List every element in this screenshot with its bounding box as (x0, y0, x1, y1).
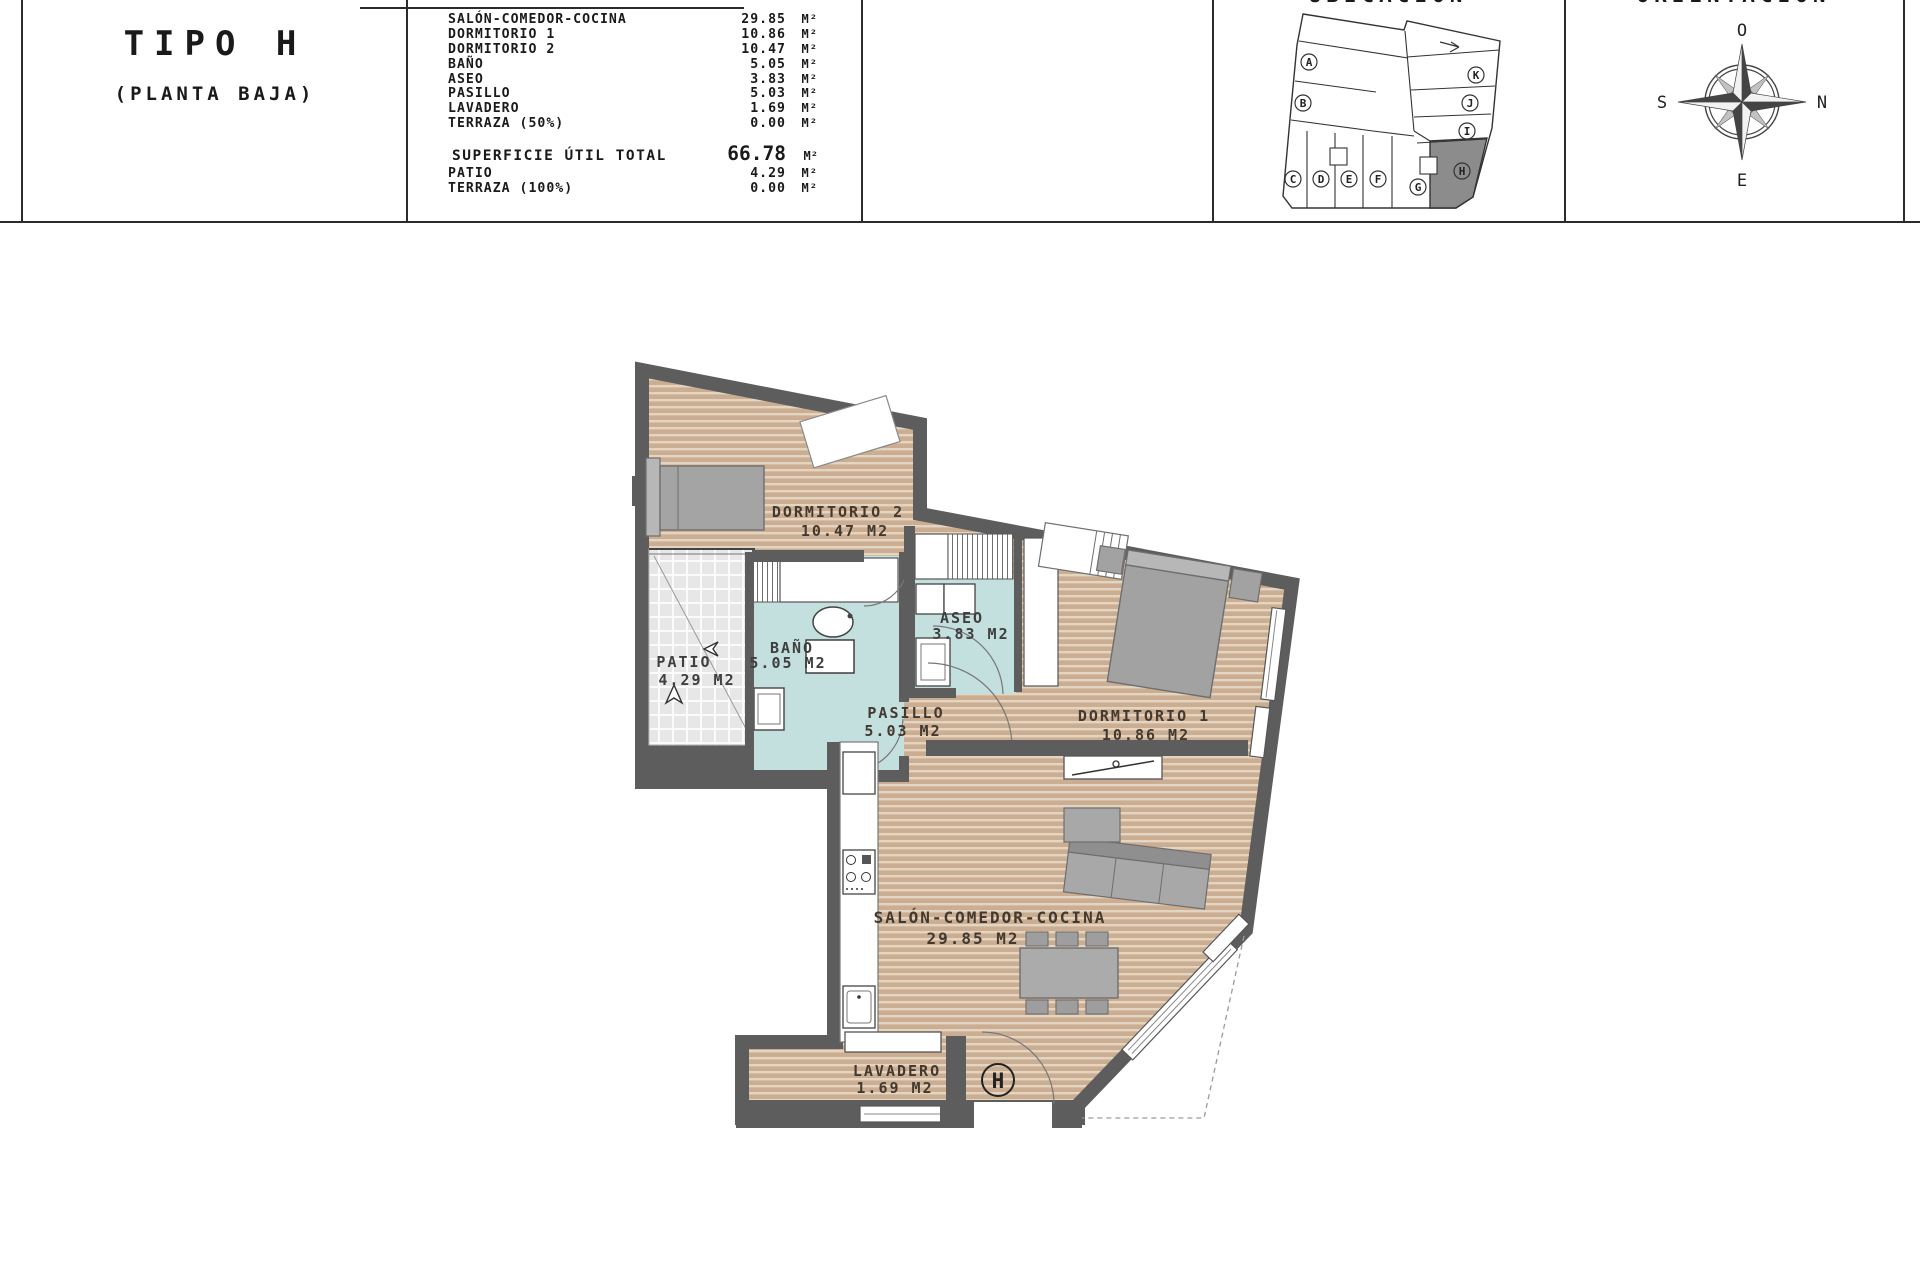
entry-threshold-right (1052, 1102, 1080, 1128)
patio-area: 4.29 M2 (658, 671, 735, 689)
sink-tap (857, 995, 861, 999)
salon-area: 29.85 M2 (926, 929, 1019, 948)
bathtub-tap (848, 614, 853, 619)
bed2-headboard (646, 458, 660, 536)
lavadero-counter (845, 1032, 941, 1052)
lavadero-label: LAVADERO (853, 1062, 941, 1080)
bathroom-shelf (780, 558, 898, 602)
unit-bubble-j: J (1467, 97, 1474, 110)
bedroom2-bottom-wall (752, 550, 864, 562)
desk-dot (1113, 761, 1119, 767)
burner-square (862, 855, 871, 864)
toilet-room-right-wall (1014, 532, 1022, 692)
plan-sheet: TIPO H (PLANTA BAJA) SALÓN-COMEDOR-COCIN… (0, 0, 1920, 1280)
unit-bubble-d: D (1318, 173, 1325, 186)
side-table (1064, 808, 1120, 842)
site-patio-square (1420, 157, 1437, 174)
compass-label-south: S (1657, 93, 1667, 113)
unit-bubble-h: H (1459, 165, 1466, 178)
bathroom-area: 5.05 M2 (749, 654, 826, 672)
bedroom2-label: DORMITORIO 2 (772, 503, 904, 521)
fridge (843, 752, 875, 794)
hall-label: PASILLO (867, 704, 944, 722)
unit-bubble-k: K (1473, 69, 1480, 82)
hall-area: 5.03 M2 (864, 722, 941, 740)
toilet-room-left-wall (904, 526, 915, 698)
salon-divider-wall (926, 740, 1248, 756)
dining-table (1020, 948, 1118, 998)
bed2 (660, 466, 764, 530)
bed1 (1107, 565, 1228, 698)
salon-label: SALÓN-COMEDOR-COCINA (874, 908, 1107, 927)
compass-rose: O N S E (1657, 21, 1827, 191)
toilet-inner (921, 644, 945, 680)
unit-bubble-g: G (1415, 181, 1422, 194)
patio-label: PATIO (656, 653, 711, 671)
lavadero-divider-wall (946, 1036, 966, 1104)
unit-bubble-c: C (1290, 173, 1297, 186)
nightstand-left (1097, 546, 1126, 575)
compass-label-east: E (1737, 171, 1747, 191)
unit-bubble-f: F (1375, 173, 1382, 186)
bathroom-closet-striped (752, 558, 780, 602)
toilet-room-bottom-wall (904, 688, 956, 698)
entry-door-gap (974, 1102, 1058, 1128)
toilet-room-closet-shelf (915, 534, 948, 579)
floor-plan: H DORMITORIO 2 10.47 M2 PATIO 4.29 M2 BA… (632, 370, 1292, 1128)
nightstand-right (1229, 569, 1262, 602)
bathtub (813, 607, 853, 637)
kitchen-west-wall (827, 742, 840, 1042)
entry-threshold-left (940, 1102, 974, 1128)
washbasin-inner (758, 694, 780, 724)
bedroom1-label: DORMITORIO 1 (1078, 707, 1210, 725)
compass-label-north: N (1817, 93, 1827, 113)
toilet-room-area: 3.83 M2 (932, 625, 1009, 643)
lavadero-area: 1.69 M2 (856, 1079, 933, 1097)
unit-bubble-a: A (1306, 56, 1313, 69)
bedroom1-area: 10.86 M2 (1102, 726, 1190, 744)
compass-main-points (1678, 44, 1806, 160)
bedroom2-area: 10.47 M2 (801, 522, 889, 540)
site-plan: A B C D E F G H I J K (1283, 14, 1500, 208)
unit-bubble-b: B (1300, 97, 1307, 110)
unit-bubble-e: E (1346, 173, 1353, 186)
site-patio-square (1330, 148, 1347, 165)
unit-bubble-i: I (1464, 125, 1471, 138)
compass-label-west: O (1737, 21, 1747, 41)
toilet-room-closet-striped (948, 534, 1013, 579)
drawing-canvas: H DORMITORIO 2 10.47 M2 PATIO 4.29 M2 BA… (0, 0, 1920, 1280)
entry-label: H (992, 1069, 1005, 1093)
